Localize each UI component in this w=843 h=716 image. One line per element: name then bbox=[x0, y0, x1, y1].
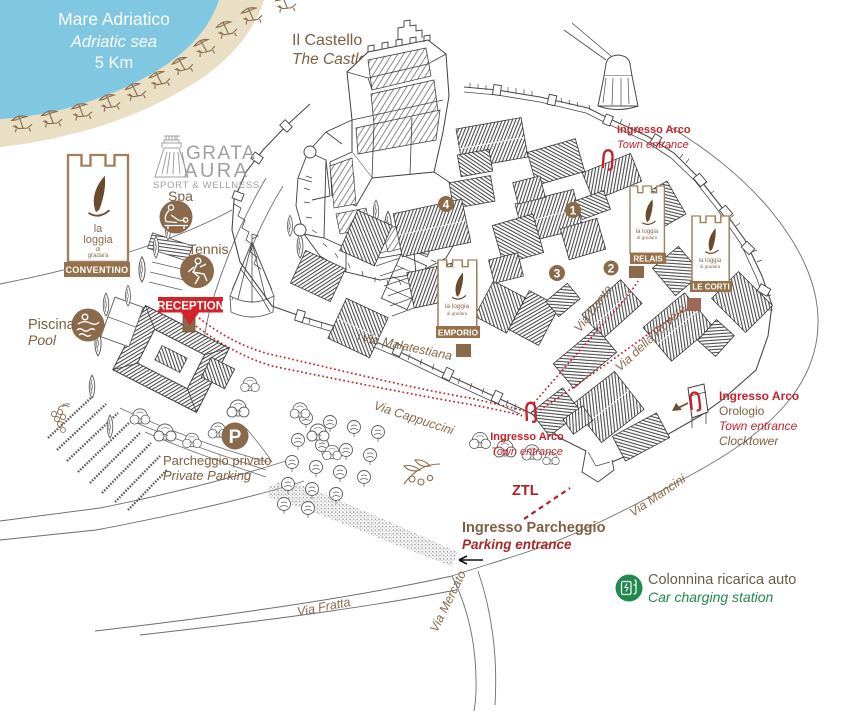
svg-text:Town entrance: Town entrance bbox=[491, 446, 563, 458]
svg-text:Tennis: Tennis bbox=[188, 241, 228, 257]
svg-text:Colonnina ricarica auto: Colonnina ricarica auto bbox=[648, 572, 796, 588]
svg-text:EMPORIO: EMPORIO bbox=[438, 328, 479, 338]
svg-text:P: P bbox=[229, 427, 242, 448]
svg-text:5 Km: 5 Km bbox=[95, 54, 134, 72]
svg-text:RELAIS: RELAIS bbox=[633, 255, 663, 264]
svg-text:Town entrance: Town entrance bbox=[617, 139, 689, 151]
svg-text:di gradara: di gradara bbox=[447, 311, 468, 316]
svg-text:1: 1 bbox=[570, 204, 577, 218]
svg-text:Pool: Pool bbox=[28, 332, 57, 348]
svg-text:4: 4 bbox=[443, 198, 450, 212]
svg-text:Mare Adriatico: Mare Adriatico bbox=[58, 9, 170, 29]
svg-text:Town entrance: Town entrance bbox=[719, 419, 798, 433]
svg-text:RECEPTION: RECEPTION bbox=[157, 301, 224, 313]
svg-text:Ingresso Arco: Ingresso Arco bbox=[617, 124, 691, 136]
svg-text:Il Castello: Il Castello bbox=[292, 32, 362, 49]
svg-text:Spa: Spa bbox=[168, 188, 193, 204]
svg-text:LE CORTI: LE CORTI bbox=[692, 283, 729, 292]
svg-text:Ingresso Arco: Ingresso Arco bbox=[490, 431, 564, 443]
svg-text:Ingresso Arco: Ingresso Arco bbox=[719, 389, 799, 403]
svg-text:2: 2 bbox=[608, 262, 615, 276]
svg-text:gradara: gradara bbox=[88, 253, 109, 259]
svg-text:Clocktower: Clocktower bbox=[719, 434, 779, 448]
svg-text:CONVENTINO: CONVENTINO bbox=[65, 265, 128, 275]
svg-text:Ingresso Parcheggio: Ingresso Parcheggio bbox=[462, 520, 606, 536]
svg-text:Car charging station: Car charging station bbox=[648, 589, 774, 605]
svg-text:loggia: loggia bbox=[83, 234, 113, 246]
svg-text:Private Parking: Private Parking bbox=[163, 468, 252, 483]
svg-text:AURA: AURA bbox=[184, 160, 250, 182]
svg-text:Orologio: Orologio bbox=[719, 404, 765, 418]
svg-text:Piscina: Piscina bbox=[28, 317, 76, 333]
svg-text:di gradara: di gradara bbox=[700, 264, 721, 269]
svg-text:Adriatic sea: Adriatic sea bbox=[70, 33, 157, 51]
svg-text:ZTL: ZTL bbox=[512, 483, 539, 499]
svg-text:3: 3 bbox=[554, 267, 561, 281]
svg-text:di gradara: di gradara bbox=[637, 235, 658, 240]
svg-text:la loggia: la loggia bbox=[445, 303, 470, 310]
svg-text:Parcheggio privato: Parcheggio privato bbox=[163, 453, 271, 468]
svg-text:Parking entrance: Parking entrance bbox=[462, 537, 572, 552]
